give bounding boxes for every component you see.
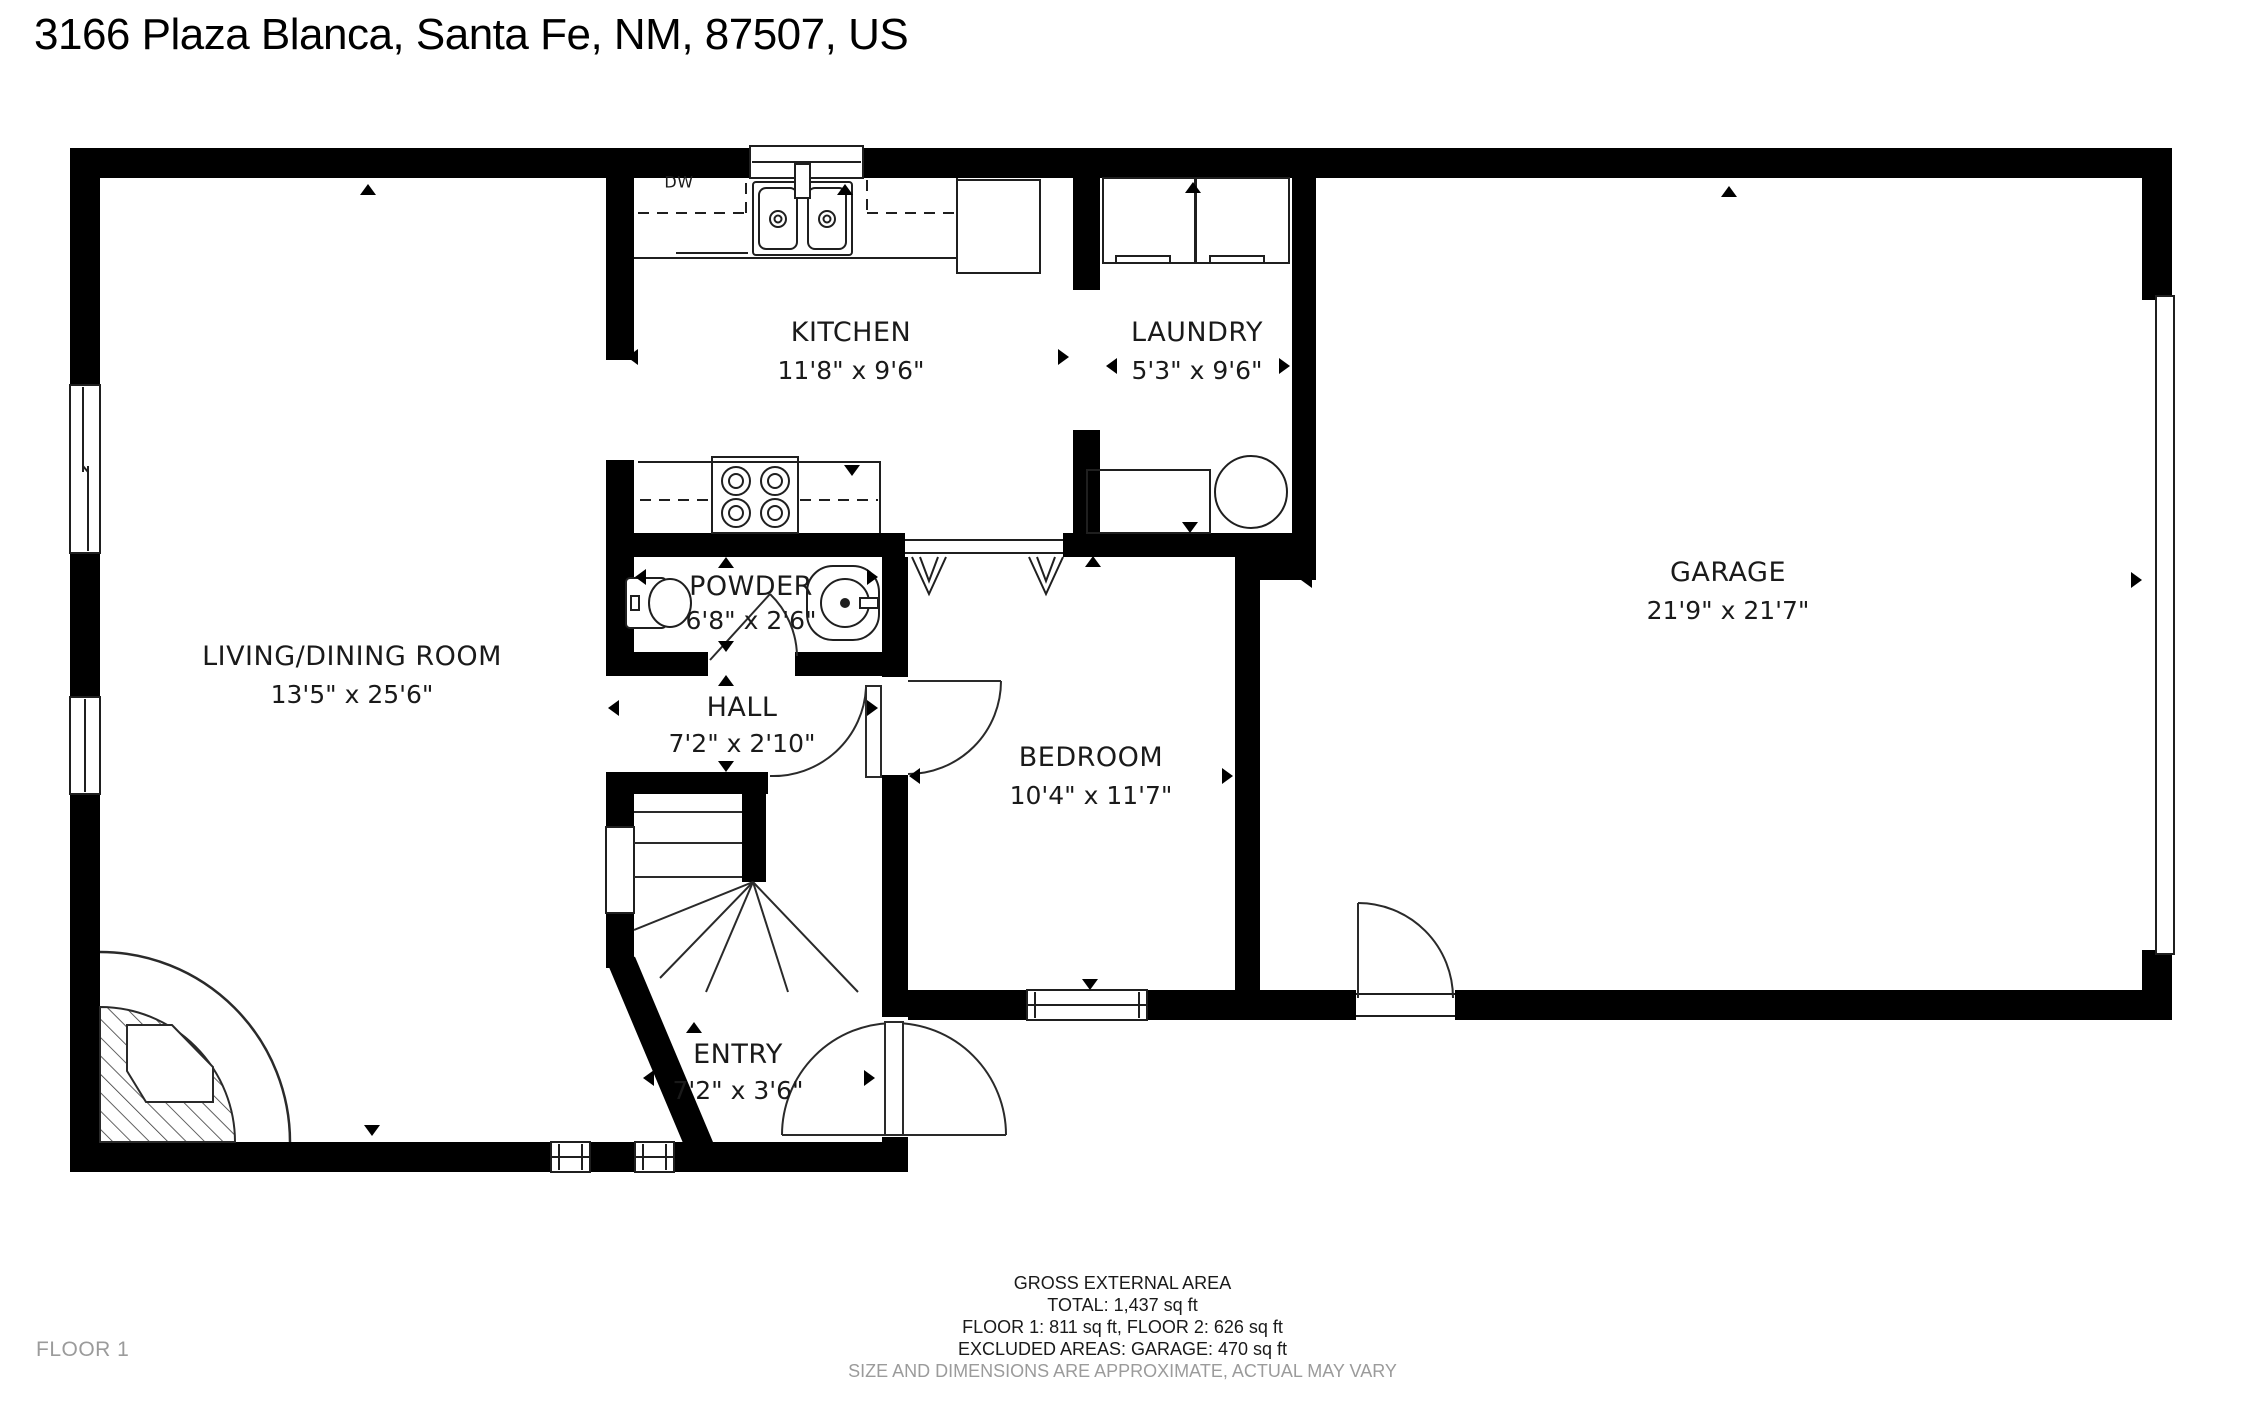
dim-arrow-down — [1082, 979, 1098, 990]
bedroom-door-opening — [882, 677, 908, 775]
dim-arrow-down — [1182, 522, 1198, 533]
dim-arrow-up — [686, 1022, 702, 1033]
bedroom-door-icon — [908, 681, 1001, 774]
dim-arrow-up — [1085, 556, 1101, 567]
dim-arrow-right — [1279, 358, 1290, 374]
room-label-kitchen: KITCHEN 11'8" x 9'6" — [778, 314, 925, 390]
garage-overhead-door-icon — [2156, 296, 2174, 954]
area-summary: GROSS EXTERNAL AREA TOTAL: 1,437 sq ft F… — [0, 1272, 2245, 1382]
room-label-bedroom: BEDROOM 10'4" x 11'7" — [1010, 739, 1173, 815]
garage-entry-door-icon — [1358, 903, 1453, 998]
dim-arrow-right — [2131, 572, 2142, 588]
dishwasher-label: DW — [664, 173, 693, 192]
dim-arrow-down — [718, 641, 734, 652]
dim-arrow-up — [1185, 182, 1201, 193]
closet-hangers-icon — [912, 557, 1063, 594]
dim-arrow-up — [837, 184, 853, 195]
floor-plan-page: 3166 Plaza Blanca, Santa Fe, NM, 87507, … — [0, 0, 2245, 1402]
toilet-icon — [626, 578, 691, 628]
washer-icon — [1103, 178, 1195, 263]
stove-icon — [712, 457, 798, 533]
dryer-icon — [1196, 178, 1289, 263]
room-label-living: LIVING/DINING ROOM 13'5" x 25'6" — [202, 638, 502, 714]
dim-arrow-left — [608, 700, 619, 716]
dim-arrow-left — [1106, 358, 1117, 374]
floor-label: FLOOR 1 — [36, 1338, 129, 1362]
dim-arrow-up — [1721, 186, 1737, 197]
dim-arrow-down — [844, 465, 860, 476]
dim-arrow-up — [718, 675, 734, 686]
refrigerator-icon — [957, 180, 1040, 273]
gross-area-heading: GROSS EXTERNAL AREA — [0, 1272, 2245, 1294]
dim-arrow-right — [1222, 768, 1233, 784]
disclaimer: SIZE AND DIMENSIONS ARE APPROXIMATE, ACT… — [0, 1360, 2245, 1382]
total-area: TOTAL: 1,437 sq ft — [0, 1294, 2245, 1316]
dim-arrow-left — [643, 1070, 654, 1086]
dim-arrow-up — [360, 184, 376, 195]
corner-fireplace-icon — [100, 952, 290, 1142]
front-door-icon — [782, 1022, 1006, 1135]
closet-shelf — [905, 533, 1063, 557]
room-label-garage: GARAGE 21'9" x 21'7" — [1647, 554, 1810, 630]
dim-arrow-down — [718, 761, 734, 772]
dim-arrow-right — [1058, 349, 1069, 365]
stair-opening — [606, 827, 634, 913]
living-window-left-lower-icon — [70, 697, 100, 794]
dim-arrow-up — [718, 557, 734, 568]
garage-door-opening — [1356, 990, 1455, 1020]
room-label-powder: POWDER 6'8" x 2'6" — [685, 570, 816, 638]
dim-arrow-right — [864, 1070, 875, 1086]
excluded-areas: EXCLUDED AREAS: GARAGE: 470 sq ft — [0, 1338, 2245, 1360]
living-window-bottom-left-icon — [551, 1142, 590, 1172]
room-label-hall: HALL 7'2" x 2'10" — [669, 690, 816, 762]
room-label-entry: ENTRY 7'2" x 3'6" — [672, 1037, 803, 1109]
bedroom-window-icon — [1027, 990, 1147, 1020]
living-window-left-upper-icon — [70, 385, 100, 553]
dim-arrow-left — [909, 768, 920, 784]
room-label-laundry: LAUNDRY 5'3" x 9'6" — [1131, 314, 1263, 390]
water-heater-icon — [1215, 456, 1287, 528]
floor-areas: FLOOR 1: 811 sq ft, FLOOR 2: 626 sq ft — [0, 1316, 2245, 1338]
living-window-bottom-right-icon — [635, 1142, 674, 1172]
dim-arrow-down — [364, 1125, 380, 1136]
